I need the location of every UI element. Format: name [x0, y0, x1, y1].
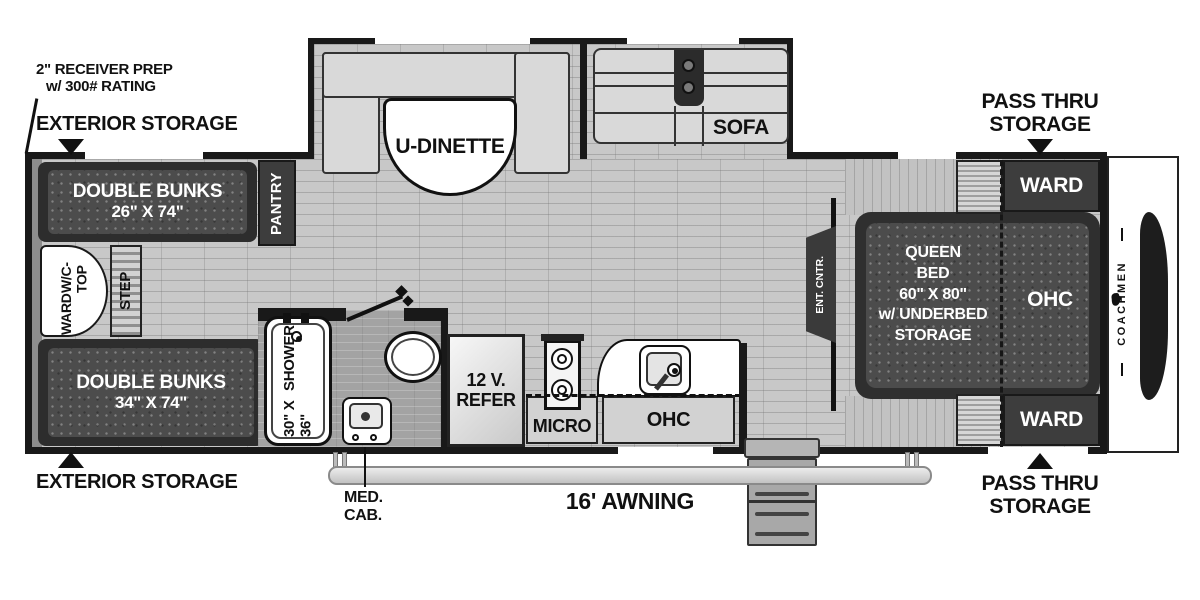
bed-ohc-label-box: OHC — [1005, 288, 1095, 311]
bunk-bottom-label: DOUBLE BUNKS — [76, 373, 225, 394]
med-cab-leader-line — [364, 447, 366, 487]
bedroom-dashed-line — [1000, 160, 1003, 447]
queen-line: QUEEN — [858, 243, 1008, 264]
double-bunk-top: DOUBLE BUNKS 26" X 74" — [48, 170, 247, 234]
ward-top: WARD — [1003, 160, 1100, 212]
pass-thru-compartment-top — [956, 160, 1003, 214]
queen-line: BED — [858, 264, 1008, 285]
step-tread — [755, 492, 809, 496]
pass-thru-top-label-1: PASS THRU — [980, 90, 1100, 113]
cupholder-icon — [682, 81, 695, 94]
rv-floor-plan: U-DINETTE SOFA DOUBLE BUNKS 26" X 74" PA… — [0, 0, 1200, 600]
bunk-top-label: DOUBLE BUNKS — [73, 182, 222, 203]
awning-tube — [328, 466, 932, 485]
ent-cntr-label: ENT. CNTR. — [815, 256, 827, 314]
micro-label: MICRO — [533, 417, 592, 437]
double-bunk-bottom: DOUBLE BUNKS 34" X 74" — [48, 348, 254, 437]
kitchen-sink — [639, 345, 691, 395]
exterior-storage-top-arrow-icon — [58, 139, 84, 155]
queen-line: STORAGE — [858, 326, 1008, 347]
queen-line: 60" X 80" — [858, 285, 1008, 306]
sofa-seam — [702, 106, 704, 146]
awning-label: 16' AWNING — [545, 489, 715, 514]
med-cab-label-1: MED. — [344, 489, 383, 507]
med-cab-label-2: CAB. — [344, 507, 382, 525]
ward-wc-label-1: WARD — [59, 293, 90, 335]
shower-faucet-icon — [283, 313, 291, 323]
toilet — [384, 331, 442, 383]
kitchen-ohc-label: OHC — [647, 409, 691, 431]
sofa-seam — [595, 112, 787, 114]
front-cap-blade — [1140, 212, 1168, 400]
window — [627, 38, 739, 44]
pass-thru-bottom-label-1: PASS THRU — [980, 472, 1100, 495]
pass-thru-bottom-arrow-icon — [1027, 453, 1053, 469]
counter-dashed-line — [526, 394, 741, 397]
step-label: STEP — [118, 272, 135, 310]
sofa: SOFA — [593, 48, 789, 144]
ward-bottom: WARD — [1003, 394, 1100, 446]
bunk-bottom-size: 34" X 74" — [115, 394, 187, 413]
step-tread — [755, 532, 809, 536]
shower-drain-icon — [291, 331, 302, 342]
brand-rule — [1121, 228, 1123, 241]
queen-line: w/ UNDERBED — [858, 305, 1008, 326]
sofa-seam — [674, 106, 676, 146]
queen-bed-text: QUEEN BED 60" X 80" w/ UNDERBED STORAGE — [858, 243, 1008, 347]
window — [85, 152, 203, 159]
cupholder-icon — [682, 59, 695, 72]
bed-ohc-label: OHC — [1027, 288, 1073, 311]
receiver-prep-label-1: 2" RECEIVER PREP — [36, 62, 173, 79]
receiver-prep-label-2: w/ 300# RATING — [46, 79, 156, 96]
bedroom-wall-bar — [831, 341, 836, 411]
window — [898, 152, 956, 159]
step: STEP — [110, 245, 142, 337]
pantry: PANTRY — [258, 160, 296, 246]
shower: 30" X 36" SHOWER — [264, 316, 332, 446]
ward-wc-label-2: W/C-TOP — [59, 247, 90, 293]
burner-icon — [551, 379, 573, 401]
sofa-console — [674, 50, 704, 106]
pass-thru-top-arrow-icon — [1027, 139, 1053, 155]
udinette-bench-right — [514, 52, 570, 174]
pass-thru-compartment-bottom — [956, 394, 1003, 446]
window — [618, 447, 713, 454]
exterior-storage-bottom-label: EXTERIOR STORAGE — [36, 471, 238, 493]
ward-top-label: WARD — [1020, 174, 1083, 197]
shower-drain-dot — [296, 336, 302, 342]
brand-rule — [1121, 363, 1123, 376]
bath-sink-cabinet — [342, 397, 392, 445]
cooktop-rail — [541, 334, 584, 341]
kitchen-ohc: OHC — [602, 396, 735, 444]
exterior-storage-top-label: EXTERIOR STORAGE — [36, 113, 238, 135]
step-hinge — [749, 500, 815, 503]
kitchen-faucet-icon — [667, 363, 681, 377]
step-tread — [755, 512, 809, 516]
pass-thru-top-label-2: STORAGE — [980, 113, 1100, 136]
sofa-label: SOFA — [713, 116, 769, 139]
cabinet-knob-icon — [370, 434, 377, 441]
refrigerator: 12 V. REFER — [447, 334, 525, 447]
shower-size-label: 30" X 36" — [282, 391, 315, 437]
shower-faucet-icon — [301, 313, 309, 323]
burner-icon — [551, 348, 573, 370]
window — [375, 38, 530, 44]
faucet-dot — [672, 368, 678, 374]
entertainment-center: ENT. CNTR. — [806, 226, 836, 343]
udinette-label: U-DINETTE — [395, 135, 504, 158]
entry-platform — [744, 438, 820, 458]
toilet-seat — [391, 338, 435, 376]
bunk-top-size: 26" X 74" — [111, 203, 183, 222]
cooktop — [544, 340, 581, 410]
burner-center — [557, 354, 567, 364]
kitchen-end-wall — [739, 343, 747, 447]
bath-faucet-icon — [361, 412, 370, 421]
slideout-divider-wall — [580, 38, 587, 159]
pantry-label: PANTRY — [269, 172, 286, 235]
exterior-storage-bottom-arrow-icon — [58, 452, 84, 468]
coachmen-dog-logo-icon — [1109, 292, 1122, 307]
pass-thru-bottom-label-2: STORAGE — [980, 495, 1100, 518]
refer-label-1: 12 V. — [467, 371, 506, 391]
cabinet-knob-icon — [352, 434, 359, 441]
refer-label-2: REFER — [456, 391, 516, 411]
ward-bottom-label: WARD — [1020, 408, 1083, 431]
